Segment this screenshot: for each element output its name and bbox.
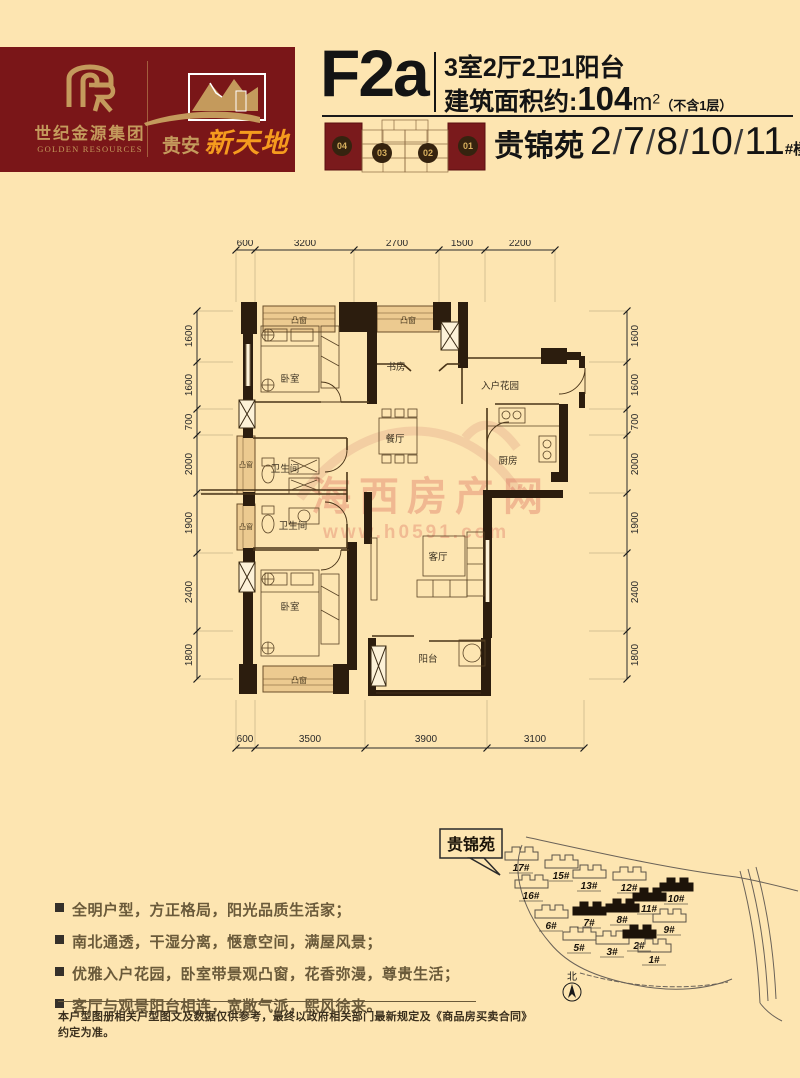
svg-text:700: 700 (184, 413, 195, 430)
project-logo: 贵安 新天地 (160, 51, 290, 169)
svg-text:12#: 12# (621, 883, 638, 894)
svg-text:凸窗: 凸窗 (239, 522, 253, 531)
svg-text:3100: 3100 (524, 734, 547, 745)
svg-text:贵锦苑: 贵锦苑 (447, 835, 495, 854)
footer-rule (58, 1001, 476, 1002)
svg-text:1600: 1600 (630, 373, 641, 396)
svg-text:02: 02 (423, 148, 433, 158)
svg-text:卫生间: 卫生间 (271, 463, 300, 475)
area-value: 104 (577, 80, 632, 117)
floor-plan: 6003200270015002200600350039003100160016… (165, 240, 645, 775)
unit-code: F2a (320, 36, 428, 110)
svg-text:凸窗: 凸窗 (239, 460, 253, 469)
project-name: 贵安 新天地 (162, 121, 290, 160)
svg-text:700: 700 (630, 413, 641, 430)
site-building-highlighted (573, 902, 606, 915)
zone-name: 贵锦苑 (494, 130, 584, 163)
header-rule (322, 115, 793, 117)
svg-text:卫生间: 卫生间 (279, 520, 308, 532)
svg-text:3900: 3900 (415, 734, 438, 745)
svg-text:3500: 3500 (299, 734, 322, 745)
site-building-highlighted (660, 878, 693, 891)
site-building (653, 909, 686, 922)
svg-text:9#: 9# (663, 925, 675, 936)
site-map: 贵锦苑 17#15#13#12#16#11#10#6#7#8#9#5#3#2#1… (430, 815, 800, 1022)
svg-text:1600: 1600 (184, 324, 195, 347)
feature-item: 优雅入户花园，卧室带景观凸窗，花香弥漫，尊贵生活； (55, 963, 485, 984)
feature-item: 全明户型，方正格局，阳光品质生活家； (55, 899, 485, 920)
feature-text: 南北通透，干湿分离，惬意空间，满屋风景； (72, 931, 382, 952)
svg-text:04: 04 (337, 141, 347, 151)
site-roads (518, 837, 798, 1021)
keyplan: 04030201 (322, 118, 488, 175)
svg-text:03: 03 (377, 148, 387, 158)
site-building (563, 927, 596, 940)
svg-text:600: 600 (237, 734, 254, 745)
svg-text:16#: 16# (523, 891, 540, 902)
svg-text:13#: 13# (581, 881, 598, 892)
brand-banner: 世纪金源集团 GOLDEN RESOURCES 贵安 新天地 (0, 47, 295, 172)
svg-text:2400: 2400 (630, 580, 641, 603)
svg-text:1600: 1600 (184, 373, 195, 396)
svg-text:6#: 6# (545, 921, 557, 932)
site-building (535, 905, 568, 918)
svg-text:17#: 17# (513, 863, 530, 874)
building-number: 7 (623, 120, 645, 163)
unit-area: 建筑面积约:104m2（不含1层） (444, 80, 732, 118)
svg-text:600: 600 (237, 240, 254, 249)
svg-text:2000: 2000 (184, 452, 195, 475)
svg-text:1900: 1900 (630, 511, 641, 534)
slash-separator: / (679, 124, 688, 162)
svg-text:11#: 11# (641, 904, 657, 915)
bullet-square-icon (55, 903, 64, 912)
area-label: 建筑面积约: (444, 88, 577, 116)
site-building (545, 855, 578, 868)
svg-text:凸窗: 凸窗 (291, 315, 307, 325)
site-building (505, 847, 538, 860)
north-arrow: 北 (563, 971, 581, 1001)
svg-text:卧室: 卧室 (280, 373, 299, 385)
svg-text:5#: 5# (573, 943, 585, 954)
project-name-prefix: 贵安 (162, 136, 200, 157)
feature-text: 优雅入户花园，卧室带景观凸窗，花香弥漫，尊贵生活； (72, 963, 460, 984)
site-building-highlighted (623, 925, 656, 938)
svg-text:2700: 2700 (386, 240, 409, 249)
svg-text:卧室: 卧室 (280, 601, 299, 613)
area-unit: m (632, 89, 652, 116)
building-suffix: #楼 (785, 141, 800, 158)
svg-text:1#: 1# (648, 955, 660, 966)
golden-resources-logo: 世纪金源集团 GOLDEN RESOURCES (30, 55, 150, 165)
building-number: 10 (689, 120, 732, 163)
building-number: 11 (744, 120, 785, 163)
svg-text:3#: 3# (606, 947, 618, 958)
slash-separator: / (646, 124, 655, 162)
watermark: 海西房产网 www.h0591.com (300, 425, 551, 543)
area-note: （不含1层） (660, 98, 732, 113)
svg-text:餐厅: 餐厅 (385, 433, 405, 445)
site-callout: 贵锦苑 (440, 829, 502, 875)
disclaimer-text: 本户型图册相关户型图文及数据仅供参考，最终以政府相关部门最新规定及《商品房买卖合… (58, 1008, 538, 1040)
company-name-en: GOLDEN RESOURCES (30, 144, 150, 154)
gr-monogram-icon (55, 55, 125, 113)
project-name-main: 新天地 (204, 128, 288, 158)
svg-text:1900: 1900 (184, 511, 195, 534)
zone-buildings-line: 贵锦苑2/7/8/10/11#楼 (494, 120, 800, 165)
svg-text:10#: 10# (668, 894, 685, 905)
feature-item: 南北通透，干湿分离，惬意空间，满屋风景； (55, 931, 485, 952)
svg-text:客厅: 客厅 (428, 551, 448, 563)
svg-text:www.h0591.com: www.h0591.com (322, 522, 509, 543)
site-building-highlighted (606, 899, 639, 912)
building-number: 8 (656, 120, 678, 163)
svg-text:1600: 1600 (630, 324, 641, 347)
svg-text:2000: 2000 (630, 452, 641, 475)
feature-text: 全明户型，方正格局，阳光品质生活家； (72, 899, 351, 920)
svg-text:3200: 3200 (294, 240, 317, 249)
company-name-cn: 世纪金源集团 (30, 120, 150, 144)
svg-text:2400: 2400 (184, 580, 195, 603)
svg-text:北: 北 (567, 971, 577, 983)
unit-layout: 3室2厅2卫1阳台 (444, 48, 625, 84)
svg-text:凸窗: 凸窗 (400, 315, 416, 325)
svg-text:入户花园: 入户花园 (481, 380, 519, 392)
svg-text:2200: 2200 (509, 240, 532, 249)
svg-text:1800: 1800 (184, 643, 195, 666)
svg-text:8#: 8# (616, 915, 628, 926)
svg-text:凸窗: 凸窗 (291, 675, 307, 685)
bullet-square-icon (55, 967, 64, 976)
site-buildings: 17#15#13#12#16#11#10#6#7#8#9#5#3#2#1# (505, 847, 693, 966)
svg-text:15#: 15# (553, 871, 570, 882)
svg-text:1500: 1500 (451, 240, 474, 249)
spec-divider (434, 52, 436, 112)
svg-text:厨房: 厨房 (498, 455, 517, 467)
svg-text:书房: 书房 (386, 361, 405, 373)
site-building (613, 867, 646, 880)
bullet-square-icon (55, 935, 64, 944)
svg-text:阳台: 阳台 (418, 653, 437, 665)
building-number: 2 (590, 120, 612, 163)
svg-text:1800: 1800 (630, 643, 641, 666)
slash-separator: / (734, 124, 743, 162)
svg-text:2#: 2# (632, 941, 645, 952)
flyer-page: 世纪金源集团 GOLDEN RESOURCES 贵安 新天地 F2a 3室2厅2… (0, 0, 800, 1078)
slash-separator: / (613, 124, 622, 162)
svg-text:01: 01 (463, 141, 473, 151)
